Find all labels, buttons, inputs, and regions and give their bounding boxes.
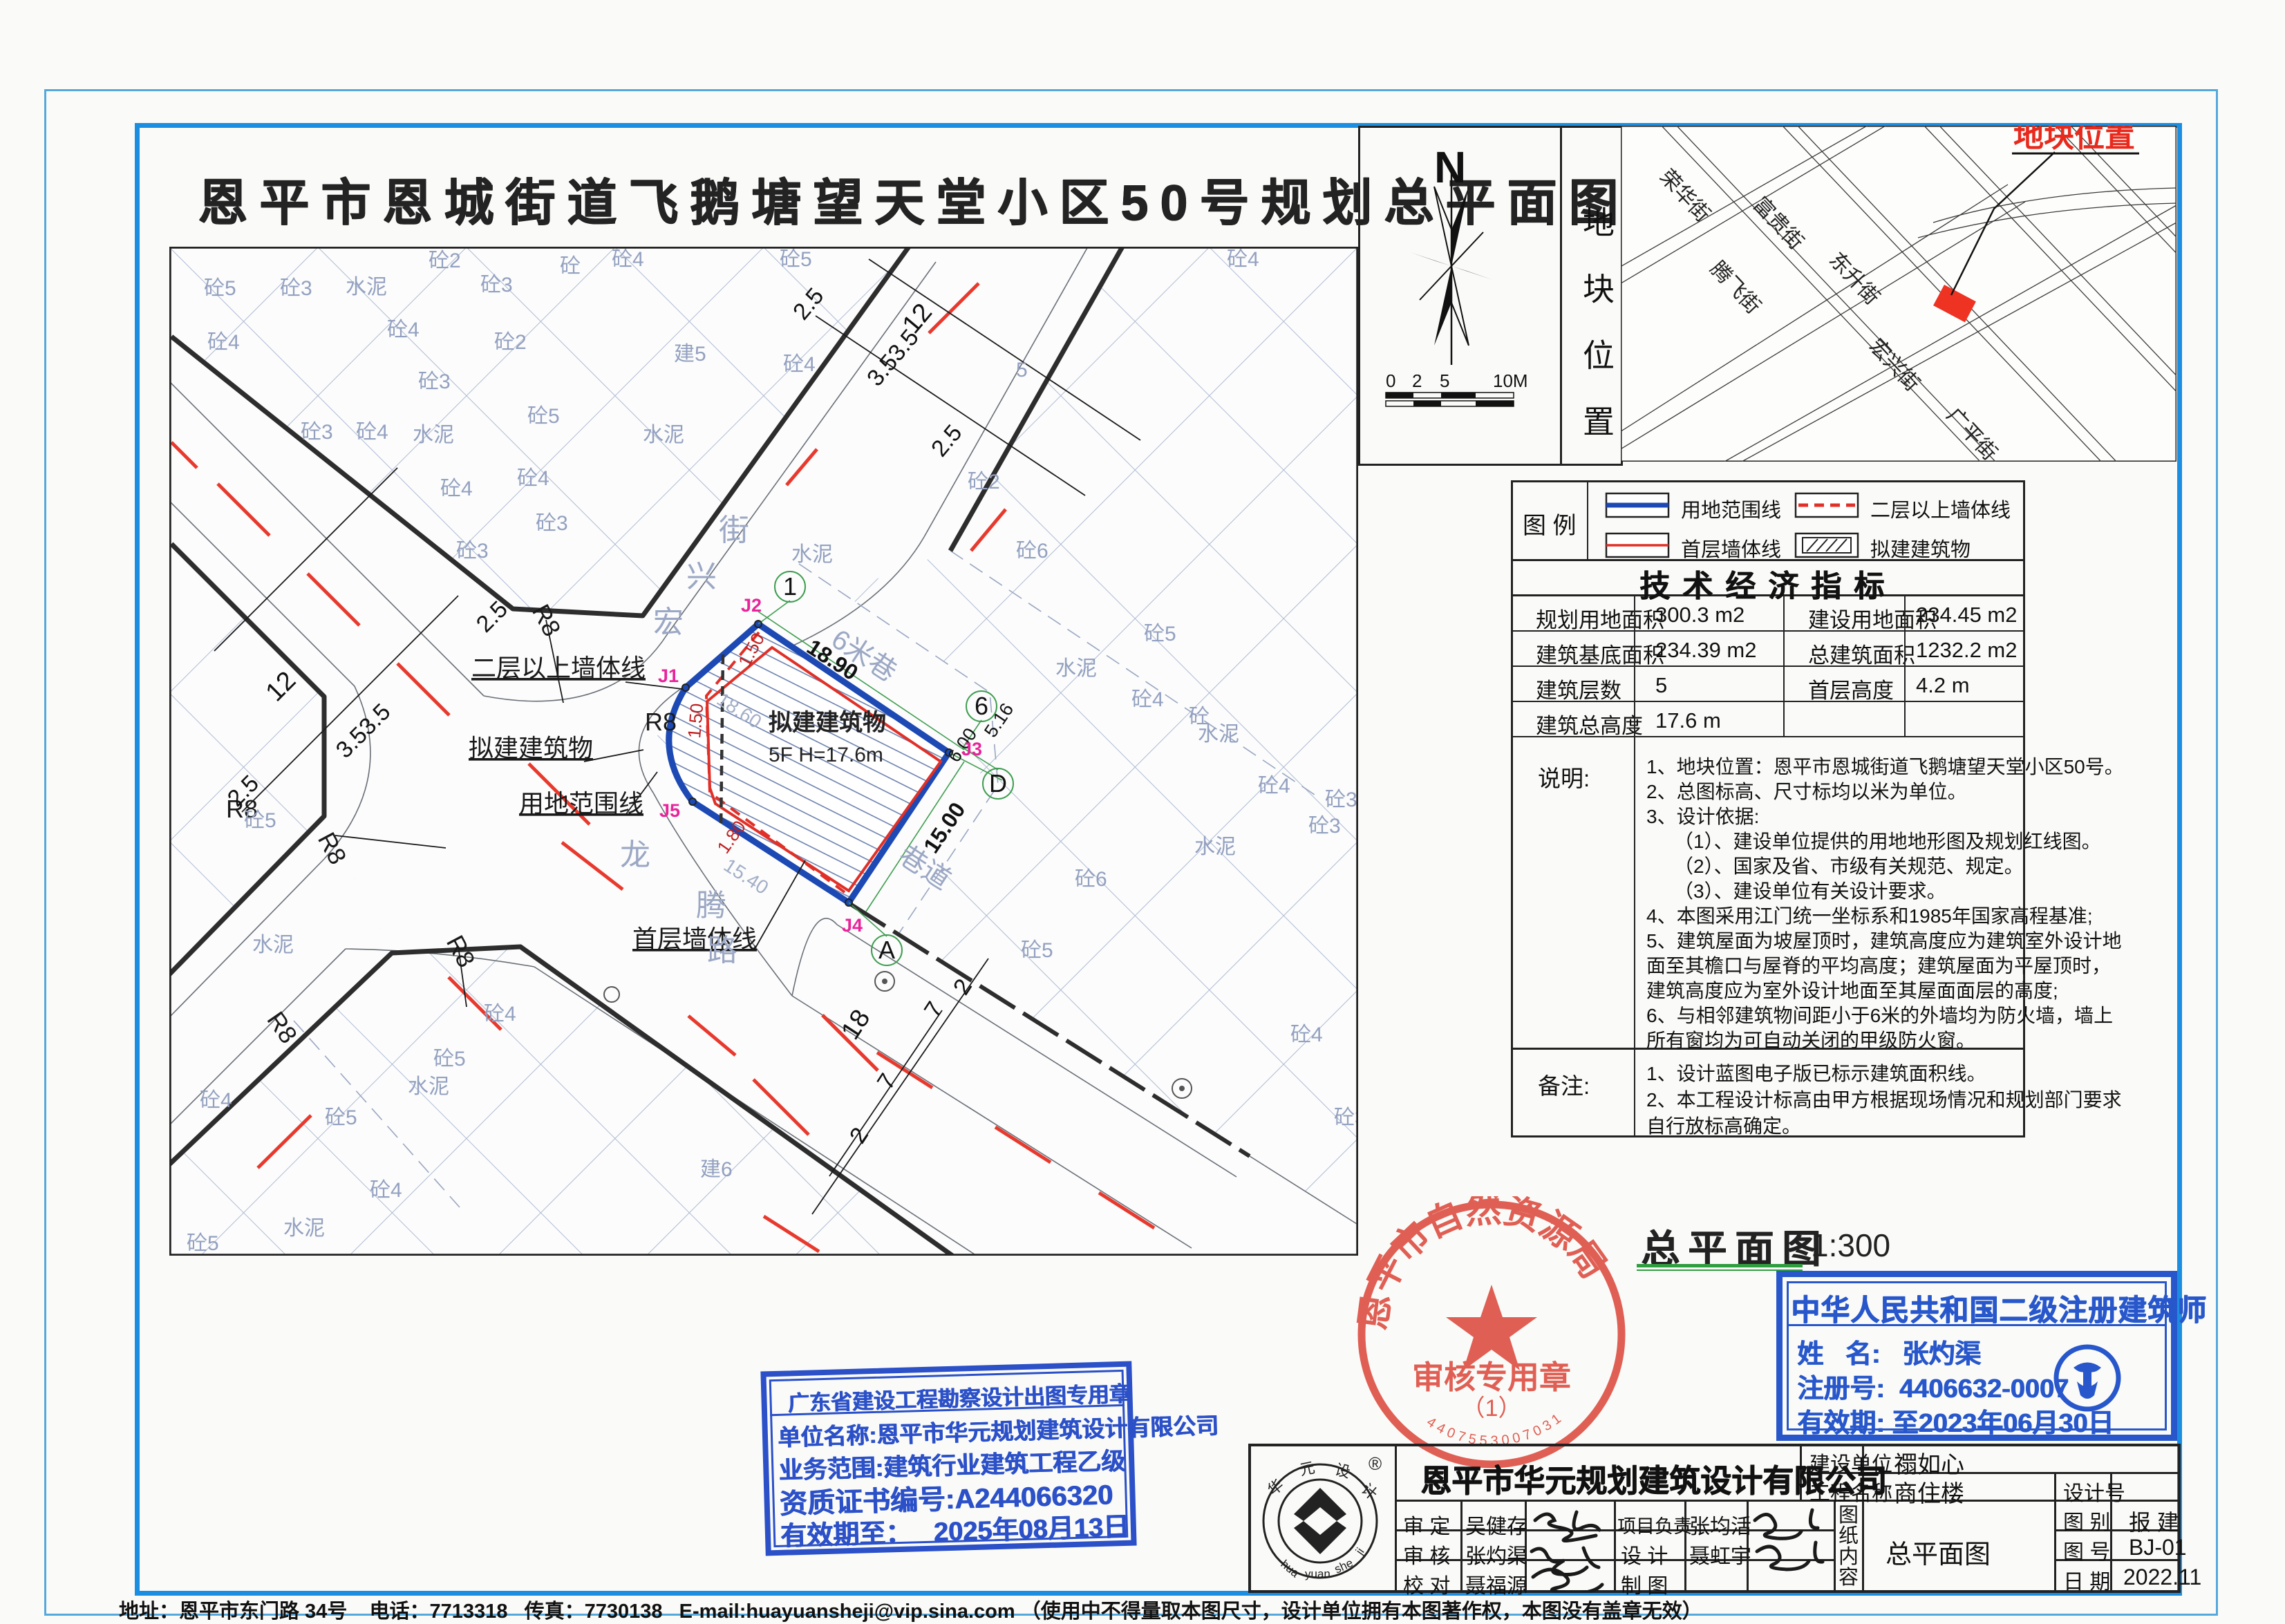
svg-text:建6: 建6 xyxy=(700,1158,733,1181)
svg-text:建5: 建5 xyxy=(674,343,706,366)
svg-text:砼2: 砼2 xyxy=(429,249,461,272)
svg-text:A: A xyxy=(878,936,895,964)
svg-text:砼4: 砼4 xyxy=(200,1089,232,1112)
svg-text:砼4: 砼4 xyxy=(783,353,816,376)
svg-text:水泥: 水泥 xyxy=(643,424,684,446)
svg-text:砼3: 砼3 xyxy=(536,512,568,535)
svg-text:5: 5 xyxy=(1440,375,1449,391)
svg-text:砼3: 砼3 xyxy=(280,277,312,300)
svg-text:砼3: 砼3 xyxy=(301,421,333,444)
svg-text:5F H=17.6m: 5F H=17.6m xyxy=(769,744,883,766)
svg-text:水泥: 水泥 xyxy=(283,1217,325,1240)
svg-text:拟建建筑物: 拟建建筑物 xyxy=(769,710,886,736)
svg-text:砼4: 砼4 xyxy=(484,1003,516,1026)
svg-text:砼3: 砼3 xyxy=(1334,1106,1358,1129)
svg-text:路: 路 xyxy=(707,934,737,967)
svg-text:J1: J1 xyxy=(658,665,679,686)
svg-text:J4: J4 xyxy=(842,915,863,936)
svg-text:yuan: yuan xyxy=(1305,1567,1330,1580)
svg-text:砼5: 砼5 xyxy=(1021,939,1053,962)
svg-text:hua: hua xyxy=(1278,1558,1301,1580)
svg-text:水泥: 水泥 xyxy=(413,424,454,446)
svg-text:元: 元 xyxy=(1298,1459,1317,1479)
svg-text:砼6: 砼6 xyxy=(1075,868,1107,891)
svg-text:水泥: 水泥 xyxy=(1194,835,1236,858)
svg-text:砼5: 砼5 xyxy=(187,1232,219,1255)
svg-text:J5: J5 xyxy=(659,800,680,821)
svg-text:龙: 龙 xyxy=(620,838,650,872)
svg-text:砼3: 砼3 xyxy=(480,274,513,296)
svg-text:砼4: 砼4 xyxy=(370,1179,402,1202)
svg-text:砼4: 砼4 xyxy=(387,319,420,341)
svg-text:J3: J3 xyxy=(961,739,982,759)
svg-text:砼2: 砼2 xyxy=(968,471,1000,493)
svg-text:砼5: 砼5 xyxy=(1144,623,1176,645)
svg-text:砼4: 砼4 xyxy=(1290,1023,1323,1046)
svg-text:砼3: 砼3 xyxy=(456,540,489,563)
svg-text:拟建建筑物: 拟建建筑物 xyxy=(469,734,593,762)
svg-text:首层墙体线: 首层墙体线 xyxy=(632,925,757,953)
svg-text:1: 1 xyxy=(783,572,797,601)
svg-text:砼4: 砼4 xyxy=(207,331,240,354)
svg-text:腾: 腾 xyxy=(696,889,726,923)
svg-text:地块位置: 地块位置 xyxy=(2013,126,2135,153)
svg-text:砼2: 砼2 xyxy=(494,331,527,354)
svg-text:0: 0 xyxy=(1386,375,1395,391)
svg-text:砼4: 砼4 xyxy=(356,421,388,444)
svg-text:砼4: 砼4 xyxy=(440,478,473,500)
svg-text:华: 华 xyxy=(1264,1476,1287,1499)
svg-text:砼5: 砼5 xyxy=(325,1106,357,1129)
svg-text:砼5: 砼5 xyxy=(527,405,560,428)
svg-text:砼3: 砼3 xyxy=(1308,815,1341,838)
svg-text:水泥: 水泥 xyxy=(1055,657,1097,680)
svg-text:10M: 10M xyxy=(1493,375,1528,391)
svg-text:砼5: 砼5 xyxy=(780,248,812,271)
svg-text:水泥: 水泥 xyxy=(408,1075,449,1098)
svg-text:兴: 兴 xyxy=(686,560,717,594)
svg-text:砼3: 砼3 xyxy=(418,370,451,393)
svg-text:1.50: 1.50 xyxy=(684,702,707,739)
svg-text:设: 设 xyxy=(1333,1461,1352,1482)
svg-text:砼3: 砼3 xyxy=(1325,789,1357,811)
svg-text:街: 街 xyxy=(719,513,749,547)
svg-text:2: 2 xyxy=(1412,375,1422,391)
svg-text:宏: 宏 xyxy=(653,605,684,639)
svg-text:砼4: 砼4 xyxy=(612,248,644,271)
svg-text:砼5: 砼5 xyxy=(244,809,276,832)
svg-text:J2: J2 xyxy=(741,595,762,616)
svg-text:D: D xyxy=(989,769,1007,797)
svg-text:砼5: 砼5 xyxy=(433,1048,466,1070)
svg-text:砼4: 砼4 xyxy=(1131,688,1164,711)
svg-text:（1）: （1） xyxy=(1462,1395,1522,1422)
svg-text:水泥: 水泥 xyxy=(252,934,294,956)
svg-text:审核专用章: 审核专用章 xyxy=(1412,1359,1571,1395)
svg-text:砼6: 砼6 xyxy=(1016,540,1049,563)
svg-text:ji: ji xyxy=(1353,1545,1366,1558)
svg-text:砼4: 砼4 xyxy=(1258,775,1290,797)
svg-text:水泥: 水泥 xyxy=(1198,723,1239,746)
svg-text:R8: R8 xyxy=(645,708,677,736)
svg-text:砼4: 砼4 xyxy=(1227,248,1259,271)
svg-text:用地范围线: 用地范围线 xyxy=(519,789,643,818)
svg-text:砼5: 砼5 xyxy=(204,277,236,300)
svg-text:砼: 砼 xyxy=(560,255,581,278)
svg-text:®: ® xyxy=(1369,1455,1382,1474)
svg-text:6: 6 xyxy=(975,692,988,720)
svg-text:水泥: 水泥 xyxy=(791,543,833,566)
svg-text:砼4: 砼4 xyxy=(517,467,549,490)
svg-text:5: 5 xyxy=(1016,359,1028,381)
svg-text:水泥: 水泥 xyxy=(346,276,387,299)
